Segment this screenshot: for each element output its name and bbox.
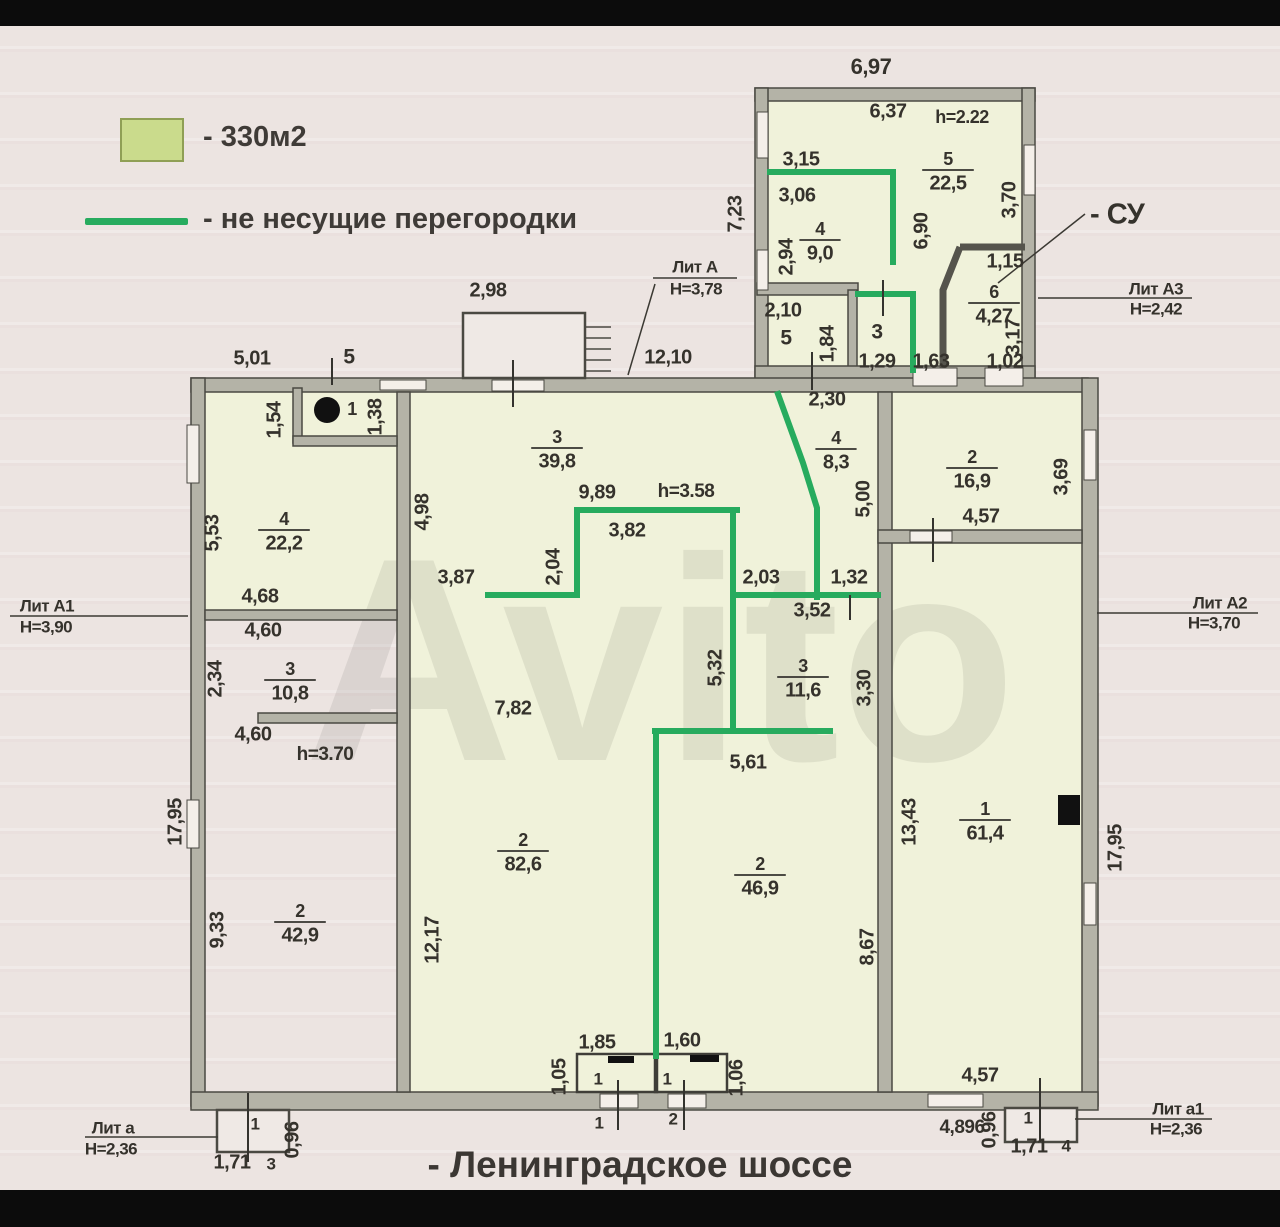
window-opening <box>1084 430 1096 480</box>
dimension-label: 1,60 <box>664 1029 701 1051</box>
window-opening <box>187 800 199 848</box>
vent-shaft-icon <box>1058 795 1080 825</box>
room-area-label: 39,8 <box>539 450 576 472</box>
dimension-label: 1,54 <box>263 400 285 438</box>
window-opening <box>380 380 426 390</box>
watermark-text: Avito <box>304 498 1016 822</box>
dimension-label: 1,32 <box>831 566 868 588</box>
litera-label: Лит а1 <box>1152 1099 1203 1118</box>
dimension-label: 0,96 <box>978 1111 1000 1148</box>
dimension-label: 2 <box>669 1109 678 1128</box>
room-number-label: 4 <box>815 219 825 239</box>
dimension-label: 2,34 <box>204 659 226 697</box>
room-number-label: 4 <box>279 509 289 529</box>
dimension-label: 2,98 <box>470 279 507 301</box>
litera-label: Лит А2 <box>1193 593 1247 612</box>
wall-segment <box>293 388 302 443</box>
dimension-label: 3,82 <box>609 519 646 541</box>
wall-mark <box>608 1056 634 1063</box>
litera-label: Н=3,70 <box>1188 613 1240 632</box>
window-opening <box>492 380 544 391</box>
litera-label: Н=2,36 <box>1150 1119 1202 1138</box>
dimension-label: 1,38 <box>364 398 386 435</box>
letterbox-bottom-bar <box>0 1190 1280 1227</box>
window-opening <box>928 1094 983 1107</box>
room-area-label: 10,8 <box>272 682 309 704</box>
dimension-label: 4,60 <box>245 619 282 641</box>
dimension-label: 3,06 <box>779 184 816 206</box>
window-opening <box>1024 145 1035 195</box>
dimension-label: 1 <box>251 1114 260 1133</box>
dimension-label: 9,33 <box>206 911 228 948</box>
dimension-label: 3,87 <box>438 566 475 588</box>
litera-label: Лит А <box>672 257 717 276</box>
room-area-label: 22,5 <box>930 172 967 194</box>
floor-plan-drawing: Avito6,976,37h=2.223,153,067,232,946,903… <box>0 0 1280 1227</box>
window-opening <box>757 250 768 290</box>
dimension-label: h=3.58 <box>658 481 715 502</box>
room-number-label: 2 <box>967 447 977 467</box>
dimension-label: 9,89 <box>579 481 616 503</box>
room-area-label: 9,0 <box>807 242 834 264</box>
dimension-label: 4,57 <box>963 505 1000 527</box>
dimension-label: 5 <box>780 327 792 350</box>
wall-segment <box>755 88 1035 101</box>
dimension-label: 13,43 <box>898 798 920 846</box>
dimension-label: 2,94 <box>775 237 797 275</box>
wall-segment <box>757 283 858 295</box>
stove-icon <box>314 397 340 423</box>
wall-segment <box>848 290 857 370</box>
dimension-label: 1,85 <box>579 1031 616 1053</box>
dimension-label: 1,84 <box>816 324 838 362</box>
room-number-label: 4 <box>831 428 841 448</box>
window-opening <box>910 531 952 542</box>
letterbox-top-bar <box>0 0 1280 26</box>
dimension-label: 8,67 <box>856 928 878 965</box>
litera-label: Лит а <box>92 1118 135 1137</box>
dimension-label: - СУ <box>1090 199 1146 231</box>
dimension-label: 3,70 <box>998 181 1020 218</box>
dimension-label: 17,95 <box>1104 824 1126 872</box>
room-number-label: 1 <box>980 799 990 819</box>
dimension-label: 5,53 <box>201 514 223 551</box>
dimension-label: 2,10 <box>765 299 802 321</box>
room-number-label: 2 <box>295 901 305 921</box>
dimension-label: 3,69 <box>1050 458 1072 495</box>
dimension-label: 3 <box>871 321 882 344</box>
dimension-label: 5,61 <box>730 751 767 773</box>
dimension-label: h=3.70 <box>297 744 354 765</box>
wall-segment <box>258 713 397 723</box>
dimension-label: 6,97 <box>851 54 892 79</box>
dimension-label: 2,04 <box>542 547 564 585</box>
dimension-label: 1,05 <box>548 1058 570 1095</box>
room-number-label: 2 <box>755 854 765 874</box>
dimension-label: 6,90 <box>910 212 932 249</box>
window-opening <box>1084 883 1096 925</box>
dimension-label: 12,17 <box>421 916 443 964</box>
dimension-label: 1,29 <box>859 350 896 372</box>
room-number-label: 3 <box>285 659 295 679</box>
dimension-label: 4,68 <box>242 585 279 607</box>
dimension-label: 1,15 <box>987 250 1024 272</box>
wall-segment <box>293 436 397 446</box>
room-area-label: 4,27 <box>976 305 1013 327</box>
litera-label: Лит А1 <box>20 596 74 615</box>
dimension-label: 3,52 <box>794 599 831 621</box>
window-opening <box>757 112 768 158</box>
dimension-label: 5,00 <box>852 480 874 517</box>
dimension-label: 5 <box>343 346 355 369</box>
dimension-label: 5,01 <box>234 347 271 369</box>
room-number-label: 2 <box>518 830 528 850</box>
room-number-label: 5 <box>943 149 953 169</box>
dimension-label: 1 <box>595 1113 604 1132</box>
room-area-label: 11,6 <box>785 679 821 701</box>
room-area-label: 82,6 <box>505 853 542 875</box>
room-number-label: 3 <box>798 656 808 676</box>
dimension-label: 1 <box>594 1069 603 1088</box>
dimension-label: 5,32 <box>704 649 726 686</box>
dimension-label: 7,82 <box>495 697 532 719</box>
room-number-label: 3 <box>552 427 562 447</box>
wall-segment <box>191 378 205 1106</box>
room-area-label: 8,3 <box>823 451 850 473</box>
wall-segment <box>1082 378 1098 1106</box>
dimension-label: h=2.22 <box>935 107 989 127</box>
wall-mark <box>690 1055 719 1062</box>
wall-segment <box>878 392 892 1092</box>
litera-label: Лит А3 <box>1129 279 1183 298</box>
wall-segment <box>205 610 397 620</box>
dimension-label: 3,15 <box>783 148 820 170</box>
room-area-label: 46,9 <box>742 877 779 899</box>
room-area-label: 42,9 <box>282 924 319 946</box>
porch-outline <box>463 313 585 378</box>
window-opening <box>668 1094 706 1108</box>
dimension-label: 2,03 <box>743 566 780 588</box>
room-number-label: 6 <box>989 282 999 302</box>
dimension-label: 1,02 <box>987 350 1024 372</box>
room-area-label: 22,2 <box>266 532 303 554</box>
dimension-label: 4,57 <box>962 1064 999 1086</box>
room-area-label: 61,4 <box>967 822 1005 844</box>
dimension-label: 7,23 <box>724 195 746 232</box>
dimension-label: 4,98 <box>411 493 433 530</box>
dimension-label: 2,30 <box>809 388 846 410</box>
room-area-label: 16,9 <box>954 470 991 492</box>
wall-segment <box>397 392 410 1092</box>
dimension-label: 3,30 <box>853 669 875 706</box>
dimension-label: 1 <box>1024 1108 1033 1127</box>
dimension-label: 17,95 <box>164 798 186 846</box>
dimension-label: 6,37 <box>870 100 907 122</box>
street-label: - Ленинградское шоссе <box>0 1144 1280 1186</box>
dimension-label: 1,63 <box>913 350 950 372</box>
dimension-label: 1 <box>663 1069 672 1088</box>
window-opening <box>187 425 199 483</box>
wall-segment <box>878 530 1082 543</box>
dimension-label: 12,10 <box>644 346 692 368</box>
litera-label: Н=2,42 <box>1130 299 1182 318</box>
litera-label: Н=3,78 <box>670 279 722 298</box>
dimension-label: 4,60 <box>235 723 272 745</box>
dimension-label: 1,06 <box>725 1059 747 1096</box>
dimension-label: 1 <box>347 399 357 419</box>
bti-floor-plan-image: - 330м2 - не несущие перегородки - Ленин… <box>0 0 1280 1227</box>
litera-label: Н=3,90 <box>20 617 72 636</box>
